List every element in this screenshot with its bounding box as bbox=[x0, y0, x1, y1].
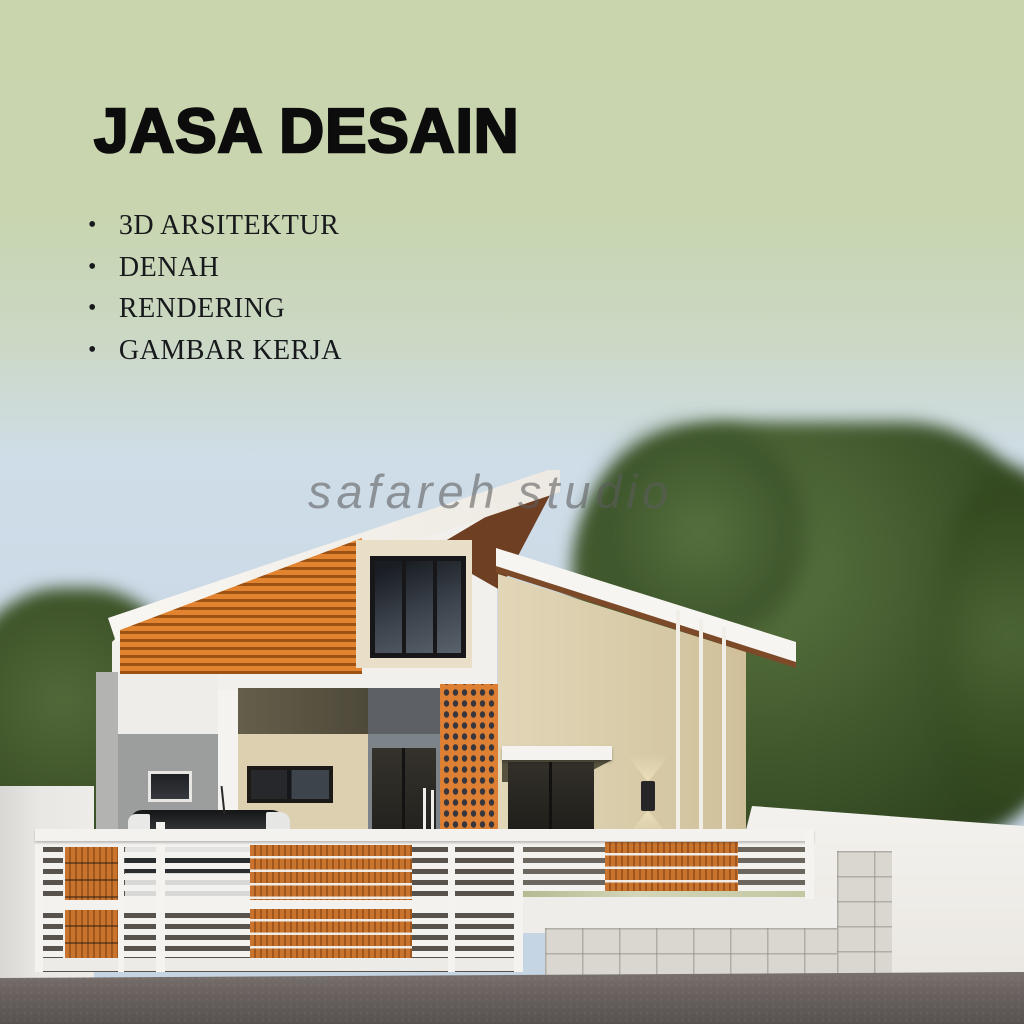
bullet-icon: • bbox=[88, 206, 97, 246]
fence-post bbox=[35, 829, 43, 972]
bullet-icon: • bbox=[88, 248, 97, 288]
gate-panel-lines bbox=[65, 847, 118, 901]
list-item: •DENAH bbox=[88, 248, 508, 290]
road bbox=[0, 968, 1024, 1024]
upper-window bbox=[370, 556, 466, 658]
ventilation-block-column bbox=[440, 684, 498, 836]
fence-wires bbox=[250, 908, 412, 965]
fence-post bbox=[805, 829, 814, 899]
service-label: 3D ARSITEKTUR bbox=[119, 206, 339, 246]
page-title: JASA DESAIN bbox=[94, 96, 694, 167]
fence-wires bbox=[605, 842, 738, 894]
service-label: RENDERING bbox=[119, 289, 285, 329]
bullet-icon: • bbox=[88, 289, 97, 329]
side-door bbox=[508, 762, 594, 836]
fence-top-rail bbox=[35, 829, 814, 841]
fence-wires bbox=[250, 845, 412, 903]
list-item: •GAMBAR KERJA bbox=[88, 331, 508, 373]
porch-window bbox=[247, 766, 333, 803]
service-label: GAMBAR KERJA bbox=[119, 331, 342, 371]
wall-sconce bbox=[641, 781, 655, 811]
service-list: •3D ARSITEKTUR •DENAH •RENDERING •GAMBAR… bbox=[88, 206, 508, 372]
fence-post bbox=[448, 833, 455, 972]
gate-post bbox=[156, 822, 165, 972]
garage-window bbox=[148, 771, 192, 802]
fence-wood-panel bbox=[250, 908, 412, 965]
gate-wood-panel bbox=[63, 908, 120, 965]
garage-wall-upper bbox=[118, 670, 218, 734]
poster-canvas: JASA DESAIN •3D ARSITEKTUR •DENAH •RENDE… bbox=[0, 0, 1024, 1024]
watermark: safareh studio bbox=[308, 464, 828, 519]
porch-beam bbox=[238, 688, 368, 734]
bullet-icon: • bbox=[88, 331, 97, 371]
window-mullion bbox=[433, 561, 437, 653]
gate-panel-lines bbox=[65, 910, 118, 963]
list-item: •3D ARSITEKTUR bbox=[88, 206, 508, 248]
facade-strip bbox=[699, 619, 703, 836]
fence-wood-panel bbox=[605, 842, 738, 894]
tiled-pillar bbox=[837, 851, 892, 977]
gate-wood-panel bbox=[63, 845, 120, 903]
fence-wood-panel bbox=[250, 845, 412, 903]
list-item: •RENDERING bbox=[88, 289, 508, 331]
fence-post bbox=[514, 829, 523, 972]
main-door bbox=[372, 748, 436, 836]
facade-strip bbox=[722, 627, 726, 836]
garage-side-wall bbox=[96, 672, 118, 836]
service-label: DENAH bbox=[119, 248, 220, 288]
fence-post bbox=[118, 833, 124, 972]
tiled-base bbox=[545, 928, 837, 977]
door-canopy bbox=[502, 746, 612, 760]
porch-ceiling-edge bbox=[368, 688, 440, 734]
window-mullion bbox=[402, 561, 406, 653]
facade-strip bbox=[676, 610, 680, 836]
